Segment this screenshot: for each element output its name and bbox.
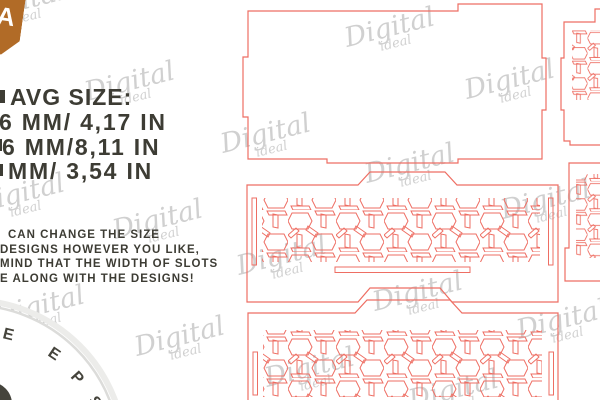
size-line: MM/ 3,54 IN <box>8 158 153 185</box>
size-line: 6 MM/ 4,17 IN <box>0 109 167 136</box>
note-line: MIND THAT THE WIDTH OF SLOTS <box>0 257 218 272</box>
cut-letter-sliver <box>0 139 2 151</box>
top-plain-panel <box>243 4 546 163</box>
product-preview: DigitalidealDigitalidealDigitalidealDigi… <box>0 0 600 400</box>
cut-letter-sliver <box>0 164 3 176</box>
eps-format-stamp: E E P S <box>0 280 130 400</box>
joint-slot <box>549 198 554 265</box>
note-line: DESIGNS HOWEVER YOU LIKE, <box>0 243 218 258</box>
pattern-block-hexagon-weave-lattice <box>262 198 540 262</box>
joint-slot <box>252 198 257 265</box>
size-line: 6 MM/8,11 IN <box>2 134 160 161</box>
resize-note: CAN CHANGE THE SIZE DESIGNS HOWEVER YOU … <box>0 228 218 286</box>
joint-slot <box>549 352 554 395</box>
note-line: CAN CHANGE THE SIZE <box>0 228 218 243</box>
pattern-block-hexagon-weave-lattice <box>572 30 600 100</box>
cut-letter-sliver <box>0 90 5 103</box>
joint-slot <box>253 352 258 395</box>
joint-slot <box>335 267 470 273</box>
avg-size-heading: AVG SIZE: <box>10 84 132 111</box>
badge-label: A <box>0 2 17 32</box>
pattern-block-hexagon-weave-lattice <box>263 330 542 397</box>
pattern-block-hexagon-weave-lattice <box>576 174 600 258</box>
